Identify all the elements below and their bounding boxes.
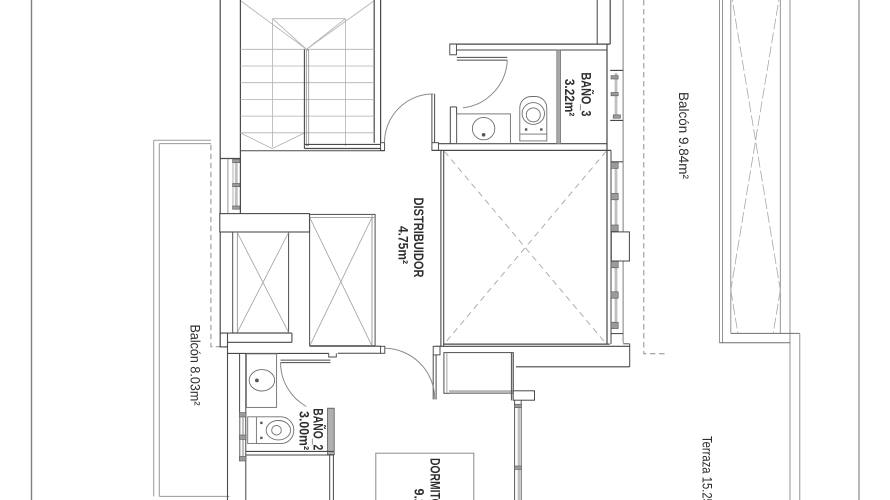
svg-text:3.00m²: 3.00m² [297,411,313,450]
svg-text:DISTRIBUIDOR: DISTRIBUIDOR [411,198,427,278]
svg-text:4.75m²: 4.75m² [396,226,412,264]
svg-text:Terraza 15.25m²: Terraza 15.25m² [700,436,715,500]
svg-text:9.20m²: 9.20m² [412,489,428,500]
svg-text:BAÑO_3: BAÑO_3 [579,72,596,116]
svg-text:Balcón 9.84m²: Balcón 9.84m² [676,92,691,180]
svg-text:Balcón 8.03m²: Balcón 8.03m² [188,325,203,406]
svg-text:DORMITORIO: DORMITORIO [428,458,444,500]
svg-text:3.22m²: 3.22m² [562,79,578,117]
